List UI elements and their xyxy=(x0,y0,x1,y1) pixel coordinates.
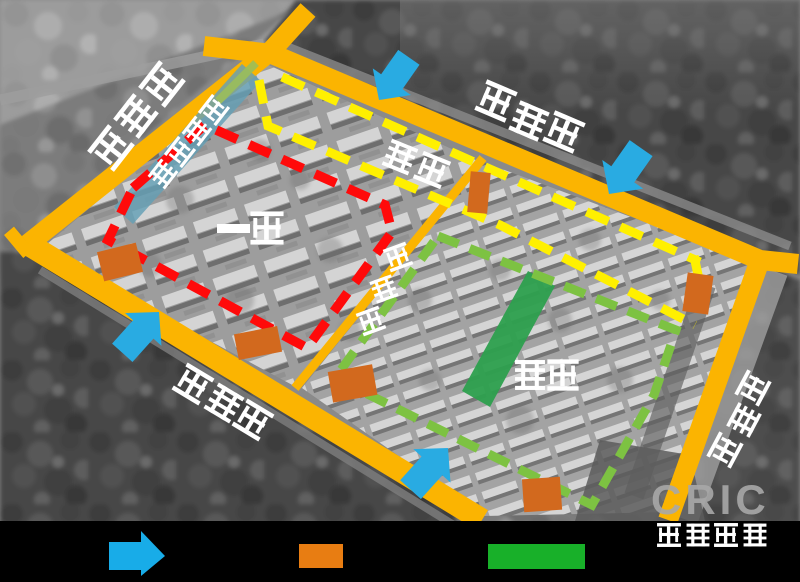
svg-text:CRIC: CRIC xyxy=(651,476,770,523)
